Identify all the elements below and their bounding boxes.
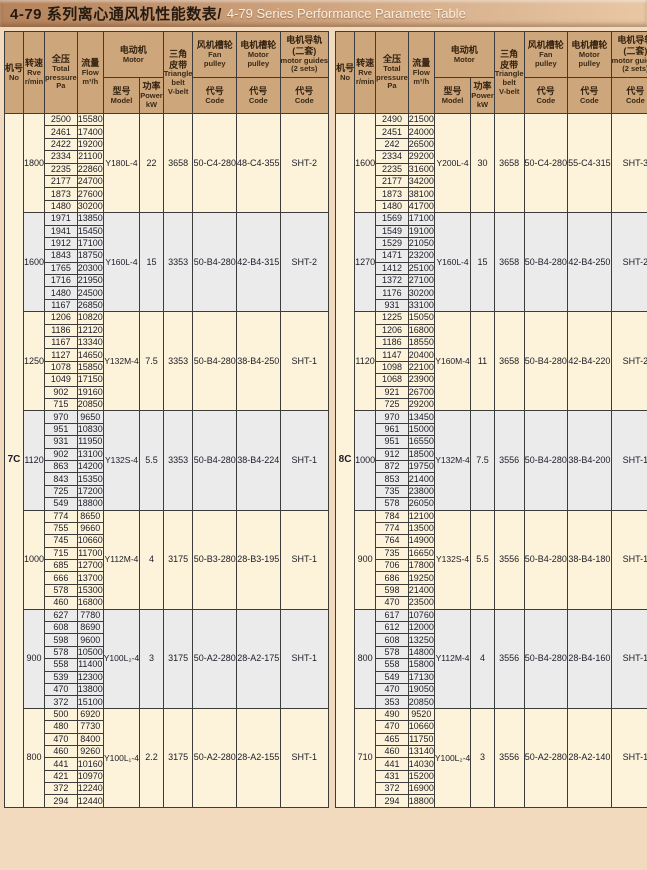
pressure-cell: 853 <box>376 473 409 485</box>
pressure-cell: 598 <box>45 634 78 646</box>
header-motor-pulley: 电机槽轮Motorpulley <box>237 32 281 78</box>
speed-cell: 1000 <box>24 510 45 609</box>
header-code: 代号Code <box>611 78 647 114</box>
pressure-cell: 460 <box>376 745 409 757</box>
machine-no-cell: 8C <box>336 114 355 808</box>
model-cell: Y132S-4 <box>434 510 470 609</box>
pressure-cell: 1941 <box>45 225 78 237</box>
pressure-cell: 578 <box>45 646 78 658</box>
belt-cell: 3353 <box>163 213 193 312</box>
model-cell: Y100L₁-4 <box>103 708 139 807</box>
pressure-cell: 294 <box>376 795 409 807</box>
flow-cell: 17100 <box>408 213 434 225</box>
flow-cell: 10500 <box>77 646 103 658</box>
table-row: 9006277780Y100L₂-43317550-A2-28028-A2-17… <box>5 609 329 621</box>
header-speed-line: r/min <box>24 78 44 87</box>
flow-cell: 8400 <box>77 733 103 745</box>
flow-cell: 15850 <box>77 361 103 373</box>
machine-no-cell: 7C <box>5 114 24 808</box>
pressure-cell: 1843 <box>45 250 78 262</box>
header-code-line: Code <box>568 97 611 106</box>
model-cell: Y160L-4 <box>434 213 470 312</box>
flow-cell: 9260 <box>77 745 103 757</box>
speed-cell: 1120 <box>355 312 376 411</box>
pressure-cell: 2461 <box>45 126 78 138</box>
guide-code-cell: SHT-1 <box>280 312 329 411</box>
belt-cell: 3175 <box>163 708 193 807</box>
pressure-cell: 1167 <box>45 337 78 349</box>
motor-pulley-code-cell: 38-B4-200 <box>568 411 612 510</box>
model-cell: Y132S-4 <box>103 411 139 510</box>
motor-pulley-code-cell: 28-B3-195 <box>237 510 281 609</box>
pressure-cell: 685 <box>45 560 78 572</box>
flow-cell: 12240 <box>77 783 103 795</box>
flow-cell: 17130 <box>408 671 434 683</box>
header-no: 机号No <box>5 32 24 114</box>
header-no-line: 机号 <box>336 63 354 74</box>
pressure-cell: 578 <box>376 646 409 658</box>
model-cell: Y132M-4 <box>103 312 139 411</box>
pressure-cell: 612 <box>376 622 409 634</box>
header-guides: 电机导轨(二套)motor guides(2 sets) <box>280 32 329 78</box>
table-row: 10007748650Y112M-44317550-B3-28028-B3-19… <box>5 510 329 522</box>
flow-cell: 19750 <box>408 460 434 472</box>
model-cell: Y160M-4 <box>434 312 470 411</box>
speed-cell: 800 <box>355 609 376 708</box>
header-fan-pulley-line: pulley <box>193 60 236 69</box>
pressure-cell: 558 <box>376 659 409 671</box>
fan-pulley-code-cell: 50-C4-280 <box>193 114 237 213</box>
flow-cell: 15050 <box>408 312 434 324</box>
flow-cell: 22100 <box>408 361 434 373</box>
fan-pulley-code-cell: 50-B4-280 <box>524 213 568 312</box>
pressure-cell: 725 <box>376 398 409 410</box>
speed-cell: 900 <box>24 609 45 708</box>
header-power: 功率PowerkW <box>471 78 495 114</box>
header-model: 型号Model <box>434 78 470 114</box>
belt-cell: 3658 <box>494 213 524 312</box>
header-code-line: 代号 <box>193 86 236 97</box>
flow-cell: 13140 <box>408 745 434 757</box>
flow-cell: 9660 <box>77 522 103 534</box>
pressure-cell: 441 <box>376 758 409 770</box>
header-motor: 电动机Motor <box>103 32 163 78</box>
flow-cell: 6920 <box>77 708 103 720</box>
pressure-cell: 549 <box>376 671 409 683</box>
flow-cell: 13700 <box>77 572 103 584</box>
header-guides: 电机导轨(二套)motor guides(2 sets) <box>611 32 647 78</box>
pressure-cell: 1186 <box>45 324 78 336</box>
header-belt-line: V-belt <box>164 88 193 97</box>
pressure-cell: 951 <box>376 436 409 448</box>
pressure-cell: 1127 <box>45 349 78 361</box>
belt-cell: 3658 <box>494 114 524 213</box>
pressure-cell: 1049 <box>45 374 78 386</box>
flow-cell: 12120 <box>77 324 103 336</box>
flow-cell: 23800 <box>408 485 434 497</box>
speed-cell: 1120 <box>24 411 45 510</box>
header-code-line: Code <box>525 97 568 106</box>
flow-cell: 12100 <box>408 510 434 522</box>
flow-cell: 26050 <box>408 498 434 510</box>
flow-cell: 10660 <box>77 535 103 547</box>
power-cell: 22 <box>140 114 164 213</box>
flow-cell: 12440 <box>77 795 103 807</box>
header-code: 代号Code <box>193 78 237 114</box>
power-cell: 2.2 <box>140 708 164 807</box>
pressure-cell: 353 <box>376 696 409 708</box>
header-model-line: Model <box>435 97 470 106</box>
speed-cell: 1270 <box>355 213 376 312</box>
header-motor-line: 电动机 <box>104 45 163 56</box>
guide-code-cell: SHT-2 <box>280 213 329 312</box>
table-row: 100097013450Y132M-47.5355650-B4-28038-B4… <box>336 411 647 423</box>
pressure-cell: 715 <box>45 547 78 559</box>
pressure-cell: 539 <box>45 671 78 683</box>
flow-cell: 17150 <box>77 374 103 386</box>
flow-cell: 23900 <box>408 374 434 386</box>
pressure-cell: 1549 <box>376 225 409 237</box>
header-motor-line: Motor <box>435 56 494 65</box>
flow-cell: 18800 <box>408 795 434 807</box>
pressure-cell: 617 <box>376 609 409 621</box>
pressure-cell: 2451 <box>376 126 409 138</box>
header-code: 代号Code <box>237 78 281 114</box>
flow-cell: 14800 <box>408 646 434 658</box>
flow-cell: 12300 <box>77 671 103 683</box>
pressure-cell: 480 <box>45 721 78 733</box>
pressure-cell: 666 <box>45 572 78 584</box>
header-belt-line: 三角 <box>495 49 524 60</box>
pressure-cell: 902 <box>45 448 78 460</box>
speed-cell: 1600 <box>355 114 376 213</box>
table-row: 1120122515050Y160M-411365850-B4-28042-B4… <box>336 312 647 324</box>
header-code: 代号Code <box>280 78 329 114</box>
header-speed: 转速Rver/min <box>24 32 45 114</box>
flow-cell: 11700 <box>77 547 103 559</box>
model-cell: Y100L₂-4 <box>103 609 139 708</box>
pressure-cell: 735 <box>376 547 409 559</box>
flow-cell: 13250 <box>408 634 434 646</box>
flow-cell: 15800 <box>408 659 434 671</box>
flow-cell: 27100 <box>408 275 434 287</box>
belt-cell: 3353 <box>163 312 193 411</box>
belt-cell: 3556 <box>494 411 524 510</box>
flow-cell: 9520 <box>408 708 434 720</box>
flow-cell: 18550 <box>408 337 434 349</box>
guide-code-cell: SHT-1 <box>280 411 329 510</box>
pressure-cell: 2235 <box>45 163 78 175</box>
header-guides-line: 电机导轨 <box>281 35 329 46</box>
header-model-line: 型号 <box>104 86 139 97</box>
belt-cell: 3175 <box>163 609 193 708</box>
header-belt-line: 三角 <box>164 49 193 60</box>
fan-pulley-code-cell: 50-A2-280 <box>193 708 237 807</box>
pressure-cell: 912 <box>376 448 409 460</box>
flow-cell: 16800 <box>77 597 103 609</box>
header-flow: 流量Flowm³/h <box>77 32 103 114</box>
pressure-cell: 1912 <box>45 237 78 249</box>
flow-cell: 14200 <box>77 460 103 472</box>
pressure-cell: 242 <box>376 138 409 150</box>
pressure-cell: 2334 <box>376 151 409 163</box>
pressure-cell: 1068 <box>376 374 409 386</box>
header-fan-pulley: 风机槽轮Fanpulley <box>524 32 568 78</box>
header-power-line: kW <box>471 101 494 110</box>
pressure-cell: 1765 <box>45 262 78 274</box>
flow-cell: 14650 <box>77 349 103 361</box>
table-row: 7104909520Y100L₂-43355650-A2-28028-A2-14… <box>336 708 647 720</box>
header-belt-line: V-belt <box>495 88 524 97</box>
flow-cell: 17100 <box>77 237 103 249</box>
pressure-cell: 2177 <box>376 175 409 187</box>
speed-cell: 1000 <box>355 411 376 510</box>
pressure-cell: 774 <box>376 522 409 534</box>
pressure-cell: 970 <box>45 411 78 423</box>
pressure-cell: 470 <box>376 721 409 733</box>
motor-pulley-code-cell: 42-B4-250 <box>568 213 612 312</box>
flow-cell: 17800 <box>408 560 434 572</box>
model-cell: Y200L-4 <box>434 114 470 213</box>
header-no-line: No <box>5 74 23 83</box>
pressure-cell: 2334 <box>45 151 78 163</box>
pressure-cell: 421 <box>45 770 78 782</box>
flow-cell: 19050 <box>408 683 434 695</box>
flow-cell: 16900 <box>408 783 434 795</box>
header-belt: 三角皮带TrianglebeltV-belt <box>163 32 193 114</box>
flow-cell: 14030 <box>408 758 434 770</box>
fan-pulley-code-cell: 50-B4-280 <box>193 312 237 411</box>
header-power: 功率PowerkW <box>140 78 164 114</box>
header-pressure-line: Pa <box>376 82 408 91</box>
flow-cell: 15200 <box>408 770 434 782</box>
flow-cell: 31600 <box>408 163 434 175</box>
flow-cell: 11750 <box>408 733 434 745</box>
flow-cell: 18800 <box>77 498 103 510</box>
flow-cell: 27600 <box>77 188 103 200</box>
pressure-cell: 470 <box>45 683 78 695</box>
guide-code-cell: SHT-2 <box>280 114 329 213</box>
flow-cell: 20300 <box>77 262 103 274</box>
header-guides-line: (2 sets) <box>281 65 329 74</box>
pressure-cell: 1167 <box>45 299 78 311</box>
guide-code-cell: SHT-1 <box>611 510 647 609</box>
pressure-cell: 470 <box>376 683 409 695</box>
pressure-cell: 1471 <box>376 250 409 262</box>
fan-pulley-code-cell: 50-B4-280 <box>193 411 237 510</box>
performance-table-7c: 机号No转速Rver/min全压TotalpressurePa流量Flowm³/… <box>4 31 329 808</box>
motor-pulley-code-cell: 28-A2-175 <box>237 609 281 708</box>
performance-table-8c: 机号No转速Rver/min全压TotalpressurePa流量Flowm³/… <box>335 31 647 808</box>
flow-cell: 15100 <box>77 696 103 708</box>
flow-cell: 20850 <box>408 696 434 708</box>
speed-cell: 1250 <box>24 312 45 411</box>
flow-cell: 24700 <box>77 175 103 187</box>
flow-cell: 13340 <box>77 337 103 349</box>
flow-cell: 41700 <box>408 200 434 212</box>
motor-pulley-code-cell: 42-B4-315 <box>237 213 281 312</box>
speed-cell: 1800 <box>24 114 45 213</box>
pressure-cell: 706 <box>376 560 409 572</box>
pressure-cell: 372 <box>45 696 78 708</box>
pressure-cell: 2177 <box>45 175 78 187</box>
flow-cell: 30200 <box>408 287 434 299</box>
pressure-cell: 1176 <box>376 287 409 299</box>
fan-pulley-code-cell: 50-B4-280 <box>524 609 568 708</box>
header-fan-pulley: 风机槽轮Fanpulley <box>193 32 237 78</box>
pressure-cell: 549 <box>45 498 78 510</box>
fan-pulley-code-cell: 50-B4-280 <box>524 510 568 609</box>
flow-cell: 30200 <box>77 200 103 212</box>
pressure-cell: 1480 <box>376 200 409 212</box>
header-belt: 三角皮带TrianglebeltV-belt <box>494 32 524 114</box>
flow-cell: 26500 <box>408 138 434 150</box>
pressure-cell: 715 <box>45 398 78 410</box>
pressure-cell: 970 <box>376 411 409 423</box>
guide-code-cell: SHT-2 <box>611 312 647 411</box>
pressure-cell: 1480 <box>45 200 78 212</box>
guide-code-cell: SHT-1 <box>611 708 647 807</box>
header-motor-pulley-line: pulley <box>237 60 280 69</box>
power-cell: 3 <box>140 609 164 708</box>
flow-cell: 15000 <box>408 423 434 435</box>
pressure-cell: 931 <box>45 436 78 448</box>
pressure-cell: 1873 <box>376 188 409 200</box>
flow-cell: 22860 <box>77 163 103 175</box>
header-model-line: Model <box>104 97 139 106</box>
flow-cell: 24500 <box>77 287 103 299</box>
flow-cell: 13500 <box>408 522 434 534</box>
pressure-cell: 902 <box>45 386 78 398</box>
belt-cell: 3556 <box>494 609 524 708</box>
table-row: 1270156917100Y160L-415365850-B4-28042-B4… <box>336 213 647 225</box>
flow-cell: 8690 <box>77 622 103 634</box>
flow-cell: 8650 <box>77 510 103 522</box>
belt-cell: 3658 <box>494 312 524 411</box>
header-guides-line: 电机导轨 <box>612 35 647 46</box>
header-fan-pulley-line: pulley <box>525 60 568 69</box>
flow-cell: 25100 <box>408 262 434 274</box>
flow-cell: 13450 <box>408 411 434 423</box>
pressure-cell: 470 <box>45 733 78 745</box>
pressure-cell: 1147 <box>376 349 409 361</box>
header-flow: 流量Flowm³/h <box>408 32 434 114</box>
pressure-cell: 863 <box>45 460 78 472</box>
header-code-line: Code <box>193 97 236 106</box>
flow-cell: 17200 <box>77 485 103 497</box>
pressure-cell: 598 <box>376 584 409 596</box>
header-code-line: 代号 <box>525 86 568 97</box>
pressure-cell: 745 <box>45 535 78 547</box>
table-row: 11209709650Y132S-45.5335350-B4-28038-B4-… <box>5 411 329 423</box>
guide-code-cell: SHT-2 <box>611 213 647 312</box>
pressure-cell: 764 <box>376 535 409 547</box>
flow-cell: 9600 <box>77 634 103 646</box>
power-cell: 11 <box>471 312 495 411</box>
speed-cell: 900 <box>355 510 376 609</box>
flow-cell: 10970 <box>77 770 103 782</box>
flow-cell: 24000 <box>408 126 434 138</box>
pressure-cell: 578 <box>45 584 78 596</box>
flow-cell: 19160 <box>77 386 103 398</box>
pressure-cell: 1529 <box>376 237 409 249</box>
flow-cell: 12700 <box>77 560 103 572</box>
flow-cell: 7780 <box>77 609 103 621</box>
power-cell: 4 <box>471 609 495 708</box>
flow-cell: 9650 <box>77 411 103 423</box>
motor-pulley-code-cell: 55-C4-315 <box>568 114 612 213</box>
flow-cell: 16650 <box>408 547 434 559</box>
pressure-cell: 500 <box>45 708 78 720</box>
header-motor-pulley: 电机槽轮Motorpulley <box>568 32 612 78</box>
header-code-line: 代号 <box>568 86 611 97</box>
header-pressure: 全压TotalpressurePa <box>376 32 409 114</box>
flow-cell: 19100 <box>408 225 434 237</box>
pressure-cell: 372 <box>45 783 78 795</box>
header-no-line: No <box>336 74 354 83</box>
model-cell: Y160L-4 <box>103 213 139 312</box>
guide-code-cell: SHT-1 <box>280 510 329 609</box>
motor-pulley-code-cell: 28-A2-155 <box>237 708 281 807</box>
pressure-cell: 2422 <box>45 138 78 150</box>
pressure-cell: 460 <box>45 597 78 609</box>
flow-cell: 15350 <box>77 473 103 485</box>
pressure-cell: 931 <box>376 299 409 311</box>
guide-code-cell: SHT-3 <box>611 114 647 213</box>
motor-pulley-code-cell: 48-C4-355 <box>237 114 281 213</box>
pressure-cell: 1569 <box>376 213 409 225</box>
flow-cell: 33100 <box>408 299 434 311</box>
header-power-line: kW <box>140 101 163 110</box>
header-no: 机号No <box>336 32 355 114</box>
belt-cell: 3175 <box>163 510 193 609</box>
belt-cell: 3353 <box>163 411 193 510</box>
fan-pulley-code-cell: 50-A2-280 <box>193 609 237 708</box>
flow-cell: 26700 <box>408 386 434 398</box>
model-cell: Y132M-4 <box>434 411 470 510</box>
motor-pulley-code-cell: 38-B4-250 <box>237 312 281 411</box>
header-motor-pulley-line: pulley <box>568 60 611 69</box>
pressure-cell: 372 <box>376 783 409 795</box>
pressure-cell: 1971 <box>45 213 78 225</box>
pressure-cell: 460 <box>45 745 78 757</box>
flow-cell: 17400 <box>77 126 103 138</box>
flow-cell: 16550 <box>408 436 434 448</box>
flow-cell: 14900 <box>408 535 434 547</box>
flow-cell: 10760 <box>408 609 434 621</box>
motor-pulley-code-cell: 28-A2-140 <box>568 708 612 807</box>
header-motor: 电动机Motor <box>434 32 494 78</box>
pressure-cell: 294 <box>45 795 78 807</box>
flow-cell: 26850 <box>77 299 103 311</box>
header-code-line: 代号 <box>612 86 647 97</box>
table-row: 1600197113850Y160L-415335350-B4-28042-B4… <box>5 213 329 225</box>
pressure-cell: 774 <box>45 510 78 522</box>
pressure-cell: 755 <box>45 522 78 534</box>
header-pressure: 全压TotalpressurePa <box>45 32 78 114</box>
guide-code-cell: SHT-1 <box>280 708 329 807</box>
flow-cell: 15300 <box>77 584 103 596</box>
header-code-line: 代号 <box>237 86 280 97</box>
speed-cell: 710 <box>355 708 376 807</box>
motor-pulley-code-cell: 38-B4-180 <box>568 510 612 609</box>
flow-cell: 10660 <box>408 721 434 733</box>
flow-cell: 21400 <box>408 584 434 596</box>
pressure-cell: 784 <box>376 510 409 522</box>
fan-pulley-code-cell: 50-B4-280 <box>524 312 568 411</box>
belt-cell: 3556 <box>494 510 524 609</box>
pressure-cell: 1412 <box>376 262 409 274</box>
